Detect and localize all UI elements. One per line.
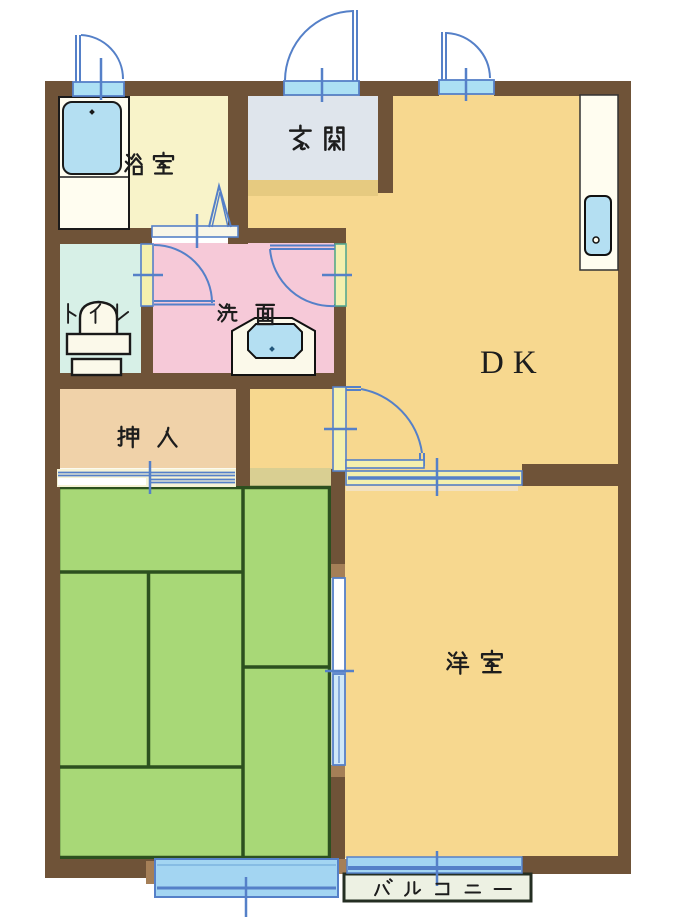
svg-text:DK: DK <box>480 345 546 381</box>
